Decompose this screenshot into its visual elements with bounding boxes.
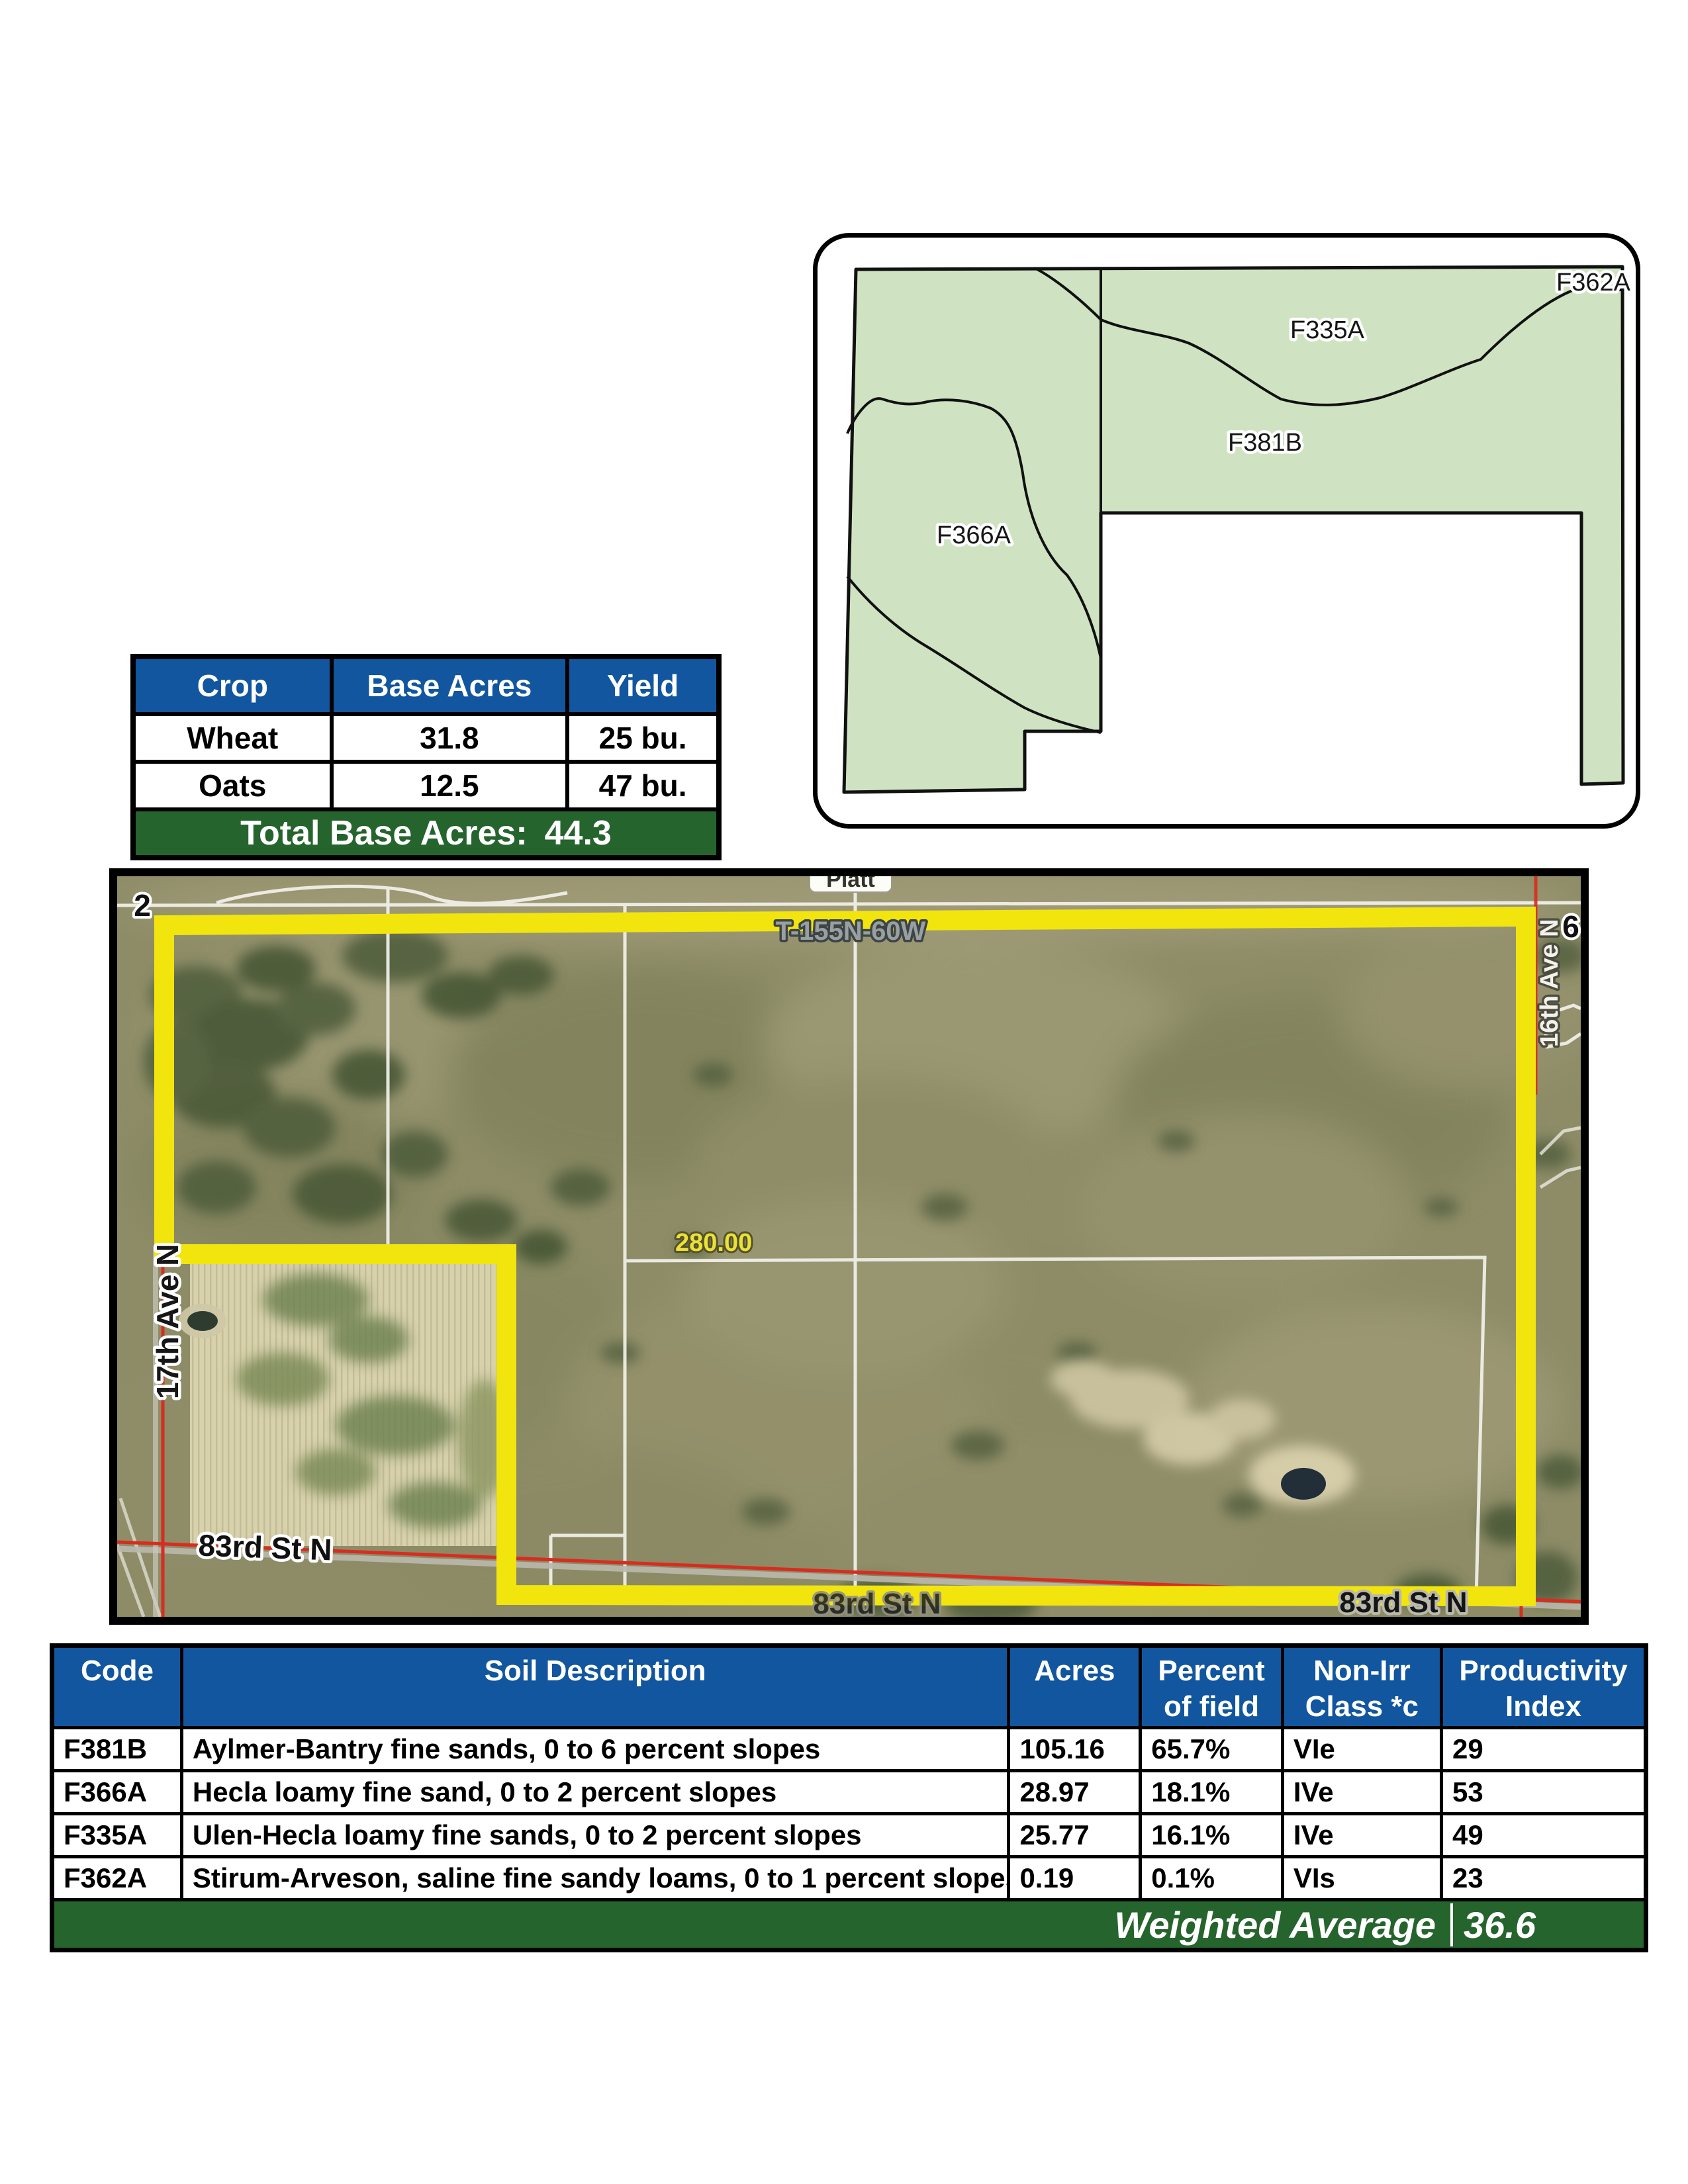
soil-row-3-acres: 25.77: [1010, 1815, 1139, 1855]
soil-row-2-description: Hecla loamy fine sand, 0 to 2 percent sl…: [183, 1772, 1008, 1812]
soil-header-productivity: ProductivityIndex: [1443, 1648, 1644, 1726]
st-bottom-right-label: 83rd St N: [1339, 1586, 1467, 1617]
soil-row-1-code: F381B: [54, 1729, 180, 1769]
zone-label-F381B: F381B: [1228, 429, 1302, 457]
ave-left-label: 17th Ave N: [150, 1244, 185, 1399]
soil-row-2-code: F366A: [54, 1772, 180, 1812]
aerial-svg: Platt 2 6 T-155N-60W 280.00 16th Ave N 1…: [117, 876, 1581, 1617]
soil-row-4-index: 23: [1443, 1858, 1644, 1898]
soil-row-1-class: VIe: [1284, 1729, 1440, 1769]
soil-row-2-acres: 28.97: [1010, 1772, 1139, 1812]
soil-row-4-percent: 0.1%: [1142, 1858, 1281, 1898]
soil-row-4-description: Stirum-Arveson, saline fine sandy loams,…: [183, 1858, 1008, 1898]
soil-productivity-table: Code Soil Description Acres Percentof fi…: [50, 1643, 1648, 1952]
ave-right-label: 16th Ave N: [1536, 919, 1564, 1047]
crop-row-wheat-name: Wheat: [136, 716, 330, 760]
soil-row-2-class: IVe: [1284, 1772, 1440, 1812]
soil-zone-map-svg: F362A F335A F381B F366A: [818, 238, 1636, 824]
soil-row-4-acres: 0.19: [1010, 1858, 1139, 1898]
soil-row-2-percent: 18.1%: [1142, 1772, 1281, 1812]
crop-header-yield: Yield: [569, 659, 716, 712]
soil-header-percent: Percentof field: [1142, 1648, 1281, 1726]
aerial-parcel-map: Platt 2 6 T-155N-60W 280.00 16th Ave N 1…: [109, 868, 1589, 1625]
distance-label: 280.00: [675, 1229, 752, 1257]
crop-row-oats-yield: 47 bu.: [569, 764, 716, 807]
crop-row-wheat-yield: 25 bu.: [569, 716, 716, 760]
soil-row-2-index: 53: [1443, 1772, 1644, 1812]
crop-header-crop: Crop: [136, 659, 330, 712]
st-bottom-center-label: 83rd St N: [813, 1588, 941, 1617]
soil-header-code: Code: [54, 1648, 180, 1726]
soil-row-4-class: VIs: [1284, 1858, 1440, 1898]
township-label: T-155N-60W: [776, 917, 926, 946]
zone-label-F335A: F335A: [1290, 316, 1365, 344]
total-base-acres-value: 44.3: [545, 813, 612, 853]
soil-row-3-class: IVe: [1284, 1815, 1440, 1855]
crop-base-acres-table: Crop Base Acres Yield Wheat 31.8 25 bu. …: [130, 654, 722, 860]
total-base-acres-label: Total Base Acres:: [240, 813, 528, 853]
soil-zone-map: F362A F335A F381B F366A: [813, 233, 1640, 829]
section-number-nw: 2: [134, 888, 151, 923]
soil-header-description: Soil Description: [183, 1648, 1008, 1726]
total-base-acres-bar: Total Base Acres: 44.3: [136, 811, 716, 855]
crop-row-oats-acres: 12.5: [334, 764, 566, 807]
soil-header-acres: Acres: [1010, 1648, 1139, 1726]
cultivated-field: [190, 1257, 511, 1546]
crop-row-wheat-acres: 31.8: [334, 716, 566, 760]
soil-row-3-description: Ulen-Hecla loamy fine sands, 0 to 2 perc…: [183, 1815, 1008, 1855]
town-sign-label: Platt: [826, 876, 875, 892]
crop-header-base-acres: Base Acres: [334, 659, 566, 712]
soil-row-1-index: 29: [1443, 1729, 1644, 1769]
weighted-average-label: Weighted Average: [54, 1903, 1450, 1946]
soil-row-3-percent: 16.1%: [1142, 1815, 1281, 1855]
soil-row-3-index: 49: [1443, 1815, 1644, 1855]
soil-row-1-percent: 65.7%: [1142, 1729, 1281, 1769]
soil-row-3-code: F335A: [54, 1815, 180, 1855]
weighted-average-bar: Weighted Average 36.6: [54, 1901, 1644, 1948]
soil-row-4-code: F362A: [54, 1858, 180, 1898]
crop-row-oats-name: Oats: [136, 764, 330, 807]
soil-row-1-description: Aylmer-Bantry fine sands, 0 to 6 percent…: [183, 1729, 1008, 1769]
zone-label-F362A: F362A: [1556, 269, 1631, 296]
weighted-average-value: 36.6: [1450, 1903, 1644, 1946]
section-number-ne: 6: [1562, 909, 1579, 944]
soil-row-1-acres: 105.16: [1010, 1729, 1139, 1769]
soil-header-nonirr: Non-IrrClass *c: [1284, 1648, 1440, 1726]
zone-label-F366A: F366A: [937, 522, 1011, 549]
st-bottom-left-label: 83rd St N: [198, 1528, 333, 1567]
